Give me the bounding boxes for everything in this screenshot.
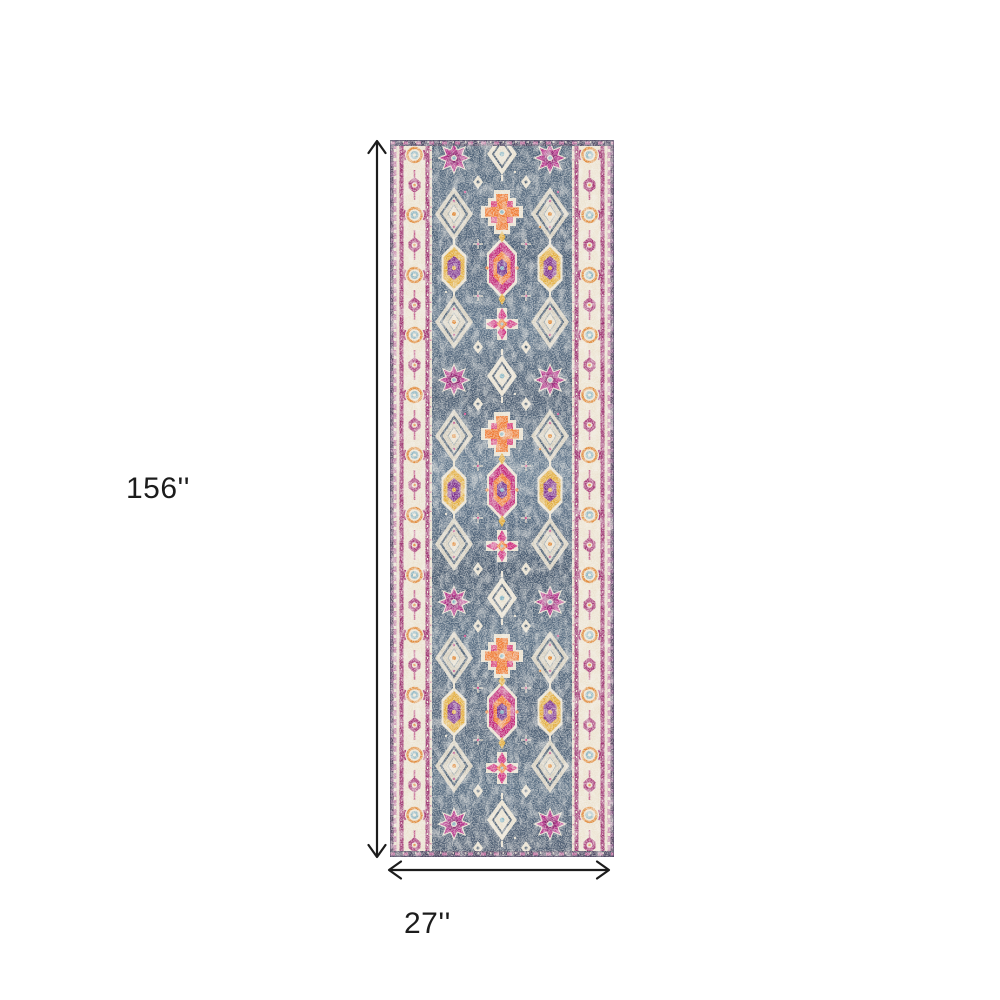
height-dimension-label: 156'' xyxy=(126,472,190,507)
horizontal-dimension-arrow xyxy=(384,857,614,883)
width-dimension-label: 27'' xyxy=(404,907,451,942)
rug-wear-speckle xyxy=(390,140,614,857)
product-dimension-diagram: 156'' xyxy=(0,0,1000,1000)
rug-image xyxy=(390,140,614,857)
rug-graphic xyxy=(390,140,614,857)
vertical-dimension-arrow xyxy=(364,136,390,862)
